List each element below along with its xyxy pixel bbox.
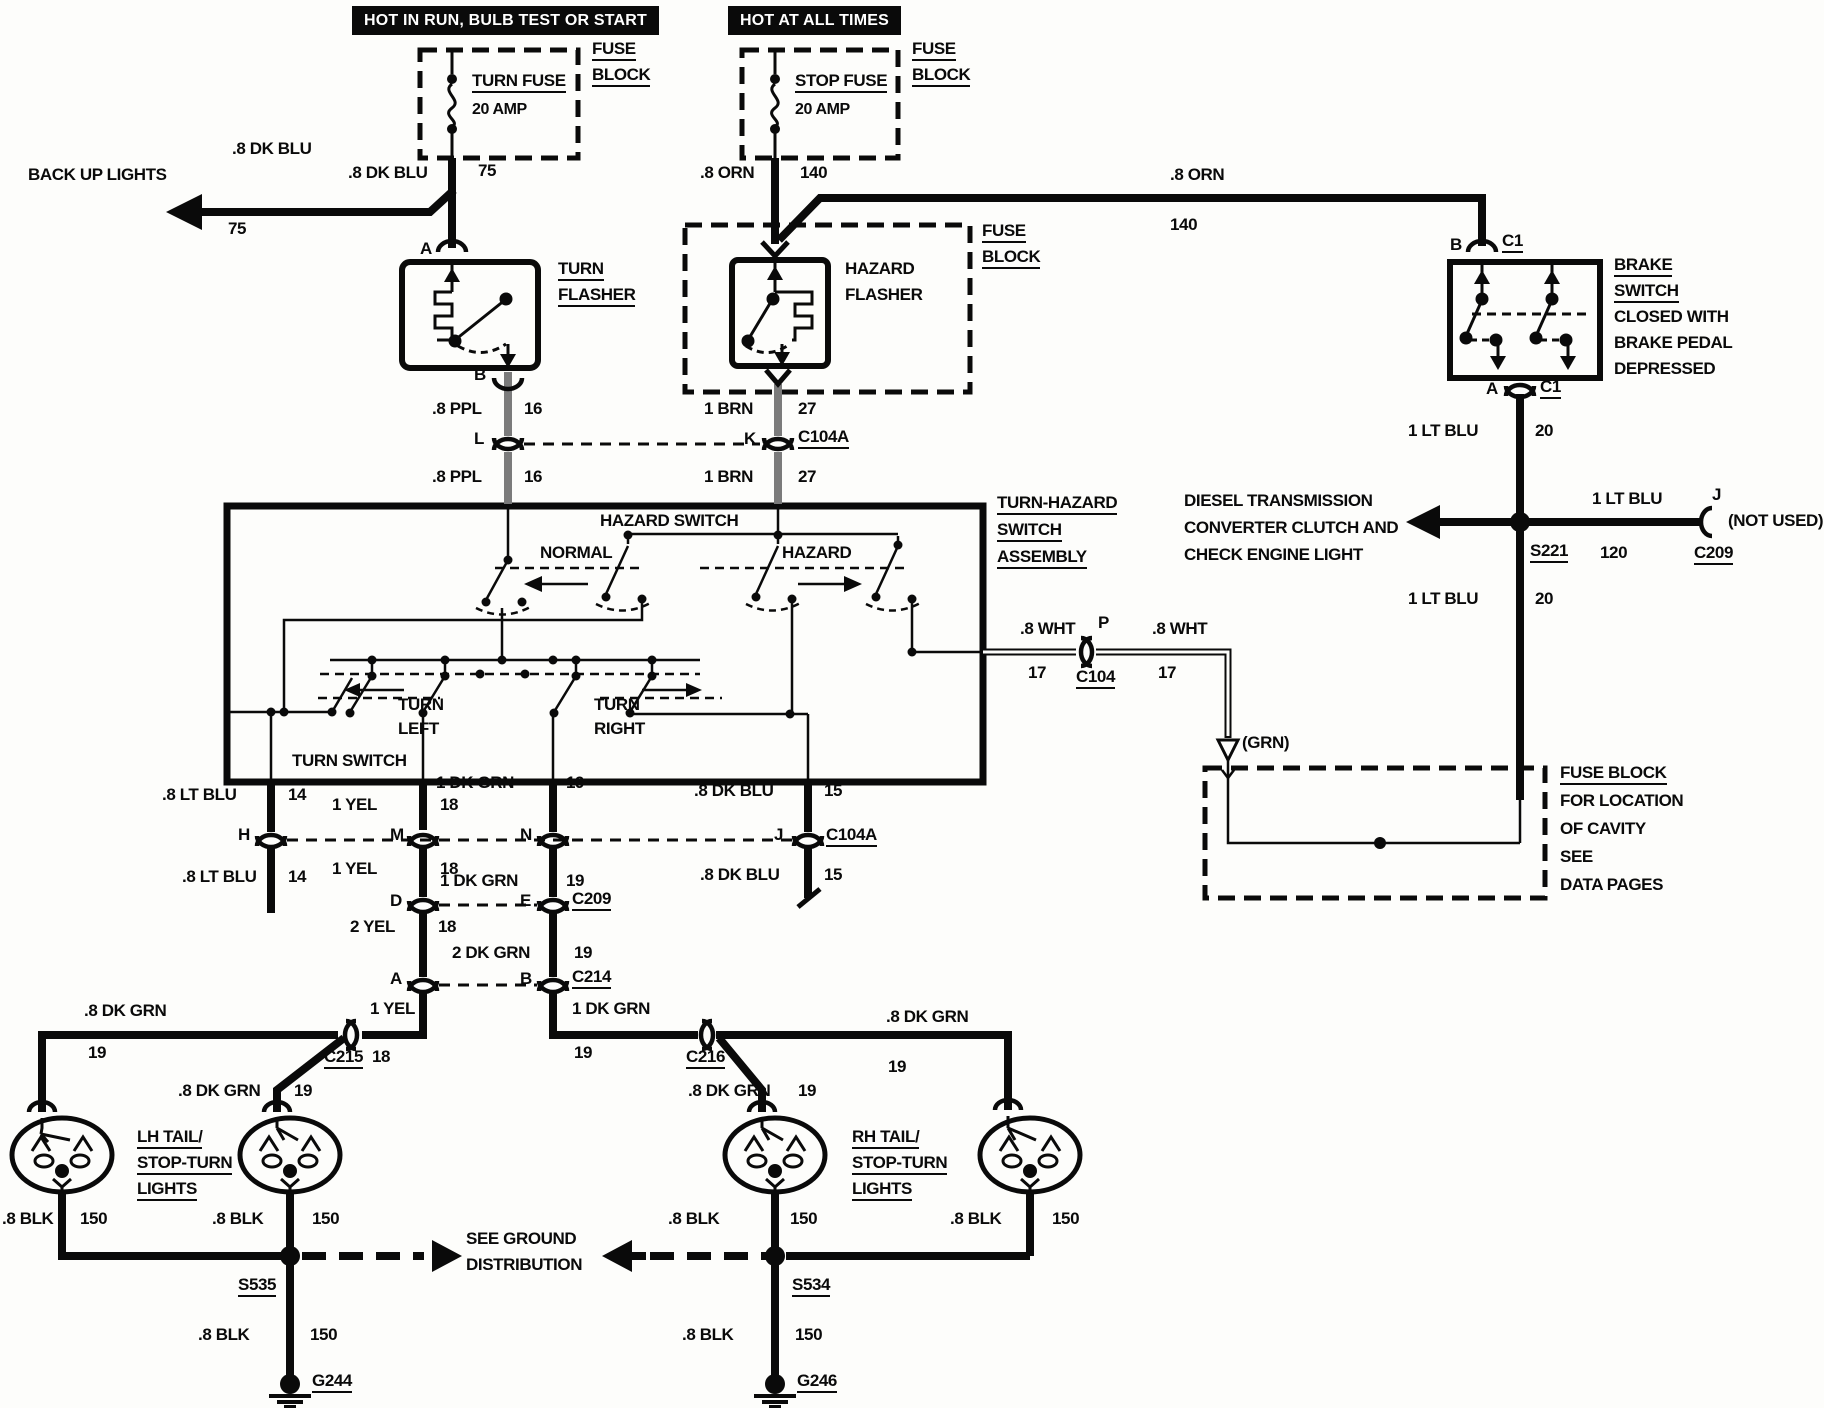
banner-hot-at-all-times: HOT AT ALL TIMES <box>728 6 901 35</box>
ground-symbols <box>269 1396 796 1407</box>
wire-blk-label-2: .8 BLK <box>212 1210 263 1227</box>
connector-c216: C216 <box>686 1048 725 1069</box>
circuit-14-b: 14 <box>288 868 306 885</box>
wire-wht-label-2: .8 WHT <box>1152 620 1207 637</box>
splice-s534: S534 <box>792 1276 830 1297</box>
wire-dkblu-label-1: .8 DK BLU <box>232 140 312 157</box>
connector-symbols <box>29 241 1712 1112</box>
fuse-block2-label-1: FUSE <box>912 40 956 61</box>
terminal-j-right: J <box>1712 486 1721 503</box>
wire-brn-label-2: 1 BRN <box>704 468 753 485</box>
wire-blk-label-6: .8 BLK <box>682 1326 733 1343</box>
terminal-b-brake: B <box>1450 236 1462 253</box>
see-ground-label-2: DISTRIBUTION <box>466 1256 582 1273</box>
wire-orn-label-1: .8 ORN <box>700 164 754 181</box>
wire-dkgrn1-label-3: 1 DK GRN <box>572 1000 650 1017</box>
terminal-l: L <box>474 430 484 447</box>
circuit-15-b: 15 <box>824 866 842 883</box>
connector-c104a-top: C104A <box>798 428 849 449</box>
terminal-p: P <box>1098 614 1109 631</box>
stop-fuse-label: STOP FUSE <box>795 72 887 93</box>
circuit-19-b: 19 <box>566 872 584 889</box>
circuit-150-a: 150 <box>80 1210 107 1227</box>
wire-ltblu1-label-2: 1 LT BLU <box>1592 490 1662 507</box>
brake-switch-label-2: SWITCH <box>1614 282 1679 303</box>
circuit-15-a: 15 <box>824 782 842 799</box>
wire-dkgrn8-label-2: .8 DK GRN <box>178 1082 260 1099</box>
connector-c214: C214 <box>572 968 611 989</box>
banner-hot-in-run: HOT IN RUN, BULB TEST OR START <box>352 6 659 35</box>
circuit-18-d: 18 <box>372 1048 390 1065</box>
fuse-block4-label-4: SEE <box>1560 848 1593 865</box>
wire-dkgrn1-label-2: 1 DK GRN <box>440 872 518 889</box>
circuit-20-b: 20 <box>1535 590 1553 607</box>
splice-s221: S221 <box>1530 542 1568 563</box>
circuit-75-a: 75 <box>478 162 496 179</box>
wire-blk-label-1: .8 BLK <box>2 1210 53 1227</box>
connector-c1-top: C1 <box>1502 232 1523 253</box>
circuit-75-b: 75 <box>228 220 246 237</box>
hazard-flasher-symbol <box>743 260 812 366</box>
connector-c215: C215 <box>324 1048 363 1069</box>
circuit-19-c: 19 <box>574 944 592 961</box>
wiring-diagram: HOT IN RUN, BULB TEST OR START HOT AT AL… <box>0 0 1824 1408</box>
wiring-diagram-graphics <box>0 0 1824 1408</box>
terminal-a-turn-flasher: A <box>420 240 432 257</box>
rh-tail-label-2: STOP-TURN <box>852 1154 947 1175</box>
back-up-lights-label: BACK UP LIGHTS <box>28 166 167 183</box>
wire-brn-label-1: 1 BRN <box>704 400 753 417</box>
wire-ltblu1-label-3: 1 LT BLU <box>1408 590 1478 607</box>
wire-ltblu8-label-1: .8 LT BLU <box>162 786 236 803</box>
wire-ltblu1-label-1: 1 LT BLU <box>1408 422 1478 439</box>
circuit-150-d: 150 <box>1052 1210 1079 1227</box>
terminal-k: K <box>744 430 756 447</box>
grn-label: (GRN) <box>1242 734 1289 751</box>
hazard-flasher-label-2: FLASHER <box>845 286 922 303</box>
assembly-name-2: SWITCH <box>997 521 1062 542</box>
circuit-18-a: 18 <box>440 796 458 813</box>
circuit-19-h: 19 <box>888 1058 906 1075</box>
wire-dkblu-label-2: .8 DK BLU <box>348 164 428 181</box>
diesel-label-1: DIESEL TRANSMISSION <box>1184 492 1373 509</box>
assembly-name-3: ASSEMBLY <box>997 548 1087 569</box>
hazard-flasher-label-1: HAZARD <box>845 260 914 277</box>
ground-g246: G246 <box>797 1372 837 1393</box>
normal-label: NORMAL <box>540 544 612 561</box>
terminal-a-row: A <box>390 970 402 987</box>
circuit-16-a: 16 <box>524 400 542 417</box>
see-ground-label-1: SEE GROUND <box>466 1230 576 1247</box>
connector-c209: C209 <box>572 890 611 911</box>
terminal-b-turn-flasher: B <box>474 366 486 383</box>
circuit-16-b: 16 <box>524 468 542 485</box>
fuse-block1-label-2: BLOCK <box>592 66 650 87</box>
wire-ppl-label-1: .8 PPL <box>432 400 482 417</box>
circuit-14-a: 14 <box>288 786 306 803</box>
rh-tail-label-1: RH TAIL/ <box>852 1128 919 1149</box>
diesel-label-2: CONVERTER CLUTCH AND <box>1184 519 1398 536</box>
fuse-block4-internals <box>1222 760 1520 843</box>
terminal-h: H <box>238 826 250 843</box>
fuse-block4-label-3: OF CAVITY <box>1560 820 1646 837</box>
splice-s535: S535 <box>238 1276 276 1297</box>
circuit-120: 120 <box>1600 544 1627 561</box>
wire-yel1-label-2: 1 YEL <box>332 860 377 877</box>
turn-left-label-1: TURN <box>398 696 444 713</box>
hazard-label: HAZARD <box>782 544 851 561</box>
turn-flasher-label-2: FLASHER <box>558 286 635 307</box>
ground-g244: G244 <box>312 1372 352 1393</box>
circuit-19-d: 19 <box>88 1044 106 1061</box>
brake-switch-label-3: CLOSED WITH <box>1614 308 1729 325</box>
circuit-140-a: 140 <box>800 164 827 181</box>
lh-tail-label-1: LH TAIL/ <box>137 1128 202 1149</box>
brake-switch-label-4: BRAKE PEDAL <box>1614 334 1732 351</box>
stop-fuse-rating: 20 AMP <box>795 102 850 118</box>
terminal-d: D <box>390 892 402 909</box>
terminal-e: E <box>520 892 531 909</box>
circuit-150-e: 150 <box>310 1326 337 1343</box>
wire-dkblu8-label-1: .8 DK BLU <box>694 782 774 799</box>
connector-c104: C104 <box>1076 668 1115 689</box>
circuit-17-b: 17 <box>1158 664 1176 681</box>
circuit-19-e: 19 <box>294 1082 312 1099</box>
circuit-17-a: 17 <box>1028 664 1046 681</box>
circuit-150-f: 150 <box>795 1326 822 1343</box>
circuit-18-c: 18 <box>438 918 456 935</box>
turn-flasher-label-1: TURN <box>558 260 604 281</box>
wire-dkgrn8-label-1: .8 DK GRN <box>84 1002 166 1019</box>
fuse-block4-label-2: FOR LOCATION <box>1560 792 1683 809</box>
wire-dkblu8-label-2: .8 DK BLU <box>700 866 780 883</box>
assembly-name-1: TURN-HAZARD <box>997 494 1117 515</box>
wire-ppl-label-2: .8 PPL <box>432 468 482 485</box>
turn-left-label-2: LEFT <box>398 720 439 737</box>
fuse-block4-label-5: DATA PAGES <box>1560 876 1663 893</box>
wire-yel1-label-3: 1 YEL <box>370 1000 415 1017</box>
circuit-20-a: 20 <box>1535 422 1553 439</box>
fuse-block4-label-1: FUSE BLOCK <box>1560 764 1667 785</box>
wire-dkgrn1-label-1: 1 DK GRN <box>436 774 514 791</box>
fuse-block3-label-2: BLOCK <box>982 248 1040 269</box>
turn-right-label-2: RIGHT <box>594 720 645 737</box>
not-used-label: (NOT USED) <box>1728 512 1823 529</box>
wire-yel2-label: 2 YEL <box>350 918 395 935</box>
terminal-m: M <box>390 826 404 843</box>
wire-dkgrn2-label: 2 DK GRN <box>452 944 530 961</box>
circuit-19-g: 19 <box>798 1082 816 1099</box>
wire-orn-label-2: .8 ORN <box>1170 166 1224 183</box>
lh-tail-label-2: STOP-TURN <box>137 1154 232 1175</box>
circuit-19-f: 19 <box>574 1044 592 1061</box>
wire-dkgrn8-label-3: .8 DK GRN <box>688 1082 770 1099</box>
turn-fuse-label: TURN FUSE <box>472 72 566 93</box>
rh-tail-label-3: LIGHTS <box>852 1180 912 1201</box>
circuit-27-a: 27 <box>798 400 816 417</box>
circuit-140-b: 140 <box>1170 216 1197 233</box>
diesel-label-3: CHECK ENGINE LIGHT <box>1184 546 1363 563</box>
connector-c209-right: C209 <box>1694 544 1733 565</box>
wire-blk-label-5: .8 BLK <box>198 1326 249 1343</box>
circuit-150-b: 150 <box>312 1210 339 1227</box>
terminal-a-brake: A <box>1486 380 1498 397</box>
fuse-block3-label-1: FUSE <box>982 222 1026 243</box>
turn-flasher-symbol <box>435 262 516 368</box>
fuse-block1-label-1: FUSE <box>592 40 636 61</box>
turn-fuse-rating: 20 AMP <box>472 102 527 118</box>
hazard-switch-label: HAZARD SWITCH <box>600 512 738 529</box>
connector-c104a-row: C104A <box>826 826 877 847</box>
terminal-j: J <box>774 826 783 843</box>
circuit-19-a: 19 <box>566 774 584 791</box>
wire-blk-label-4: .8 BLK <box>950 1210 1001 1227</box>
wire-ltblu8-label-2: .8 LT BLU <box>182 868 256 885</box>
wire-yel1-label-1: 1 YEL <box>332 796 377 813</box>
connector-c1-bottom: C1 <box>1540 378 1561 399</box>
brake-switch-label-5: DEPRESSED <box>1614 360 1715 377</box>
circuit-150-c: 150 <box>790 1210 817 1227</box>
circuit-27-b: 27 <box>798 468 816 485</box>
wire-blk-label-3: .8 BLK <box>668 1210 719 1227</box>
brake-switch-symbol <box>1461 262 1588 370</box>
wire-dkgrn8-label-4: .8 DK GRN <box>886 1008 968 1025</box>
terminal-b-row: B <box>520 970 532 987</box>
fuse-block2-label-2: BLOCK <box>912 66 970 87</box>
lh-tail-label-3: LIGHTS <box>137 1180 197 1201</box>
brake-switch-label-1: BRAKE <box>1614 256 1672 277</box>
terminal-n: N <box>520 826 532 843</box>
wire-wht-label-1: .8 WHT <box>1020 620 1075 637</box>
turn-right-label-1: TURN <box>594 696 640 713</box>
turn-switch-label: TURN SWITCH <box>292 752 407 769</box>
